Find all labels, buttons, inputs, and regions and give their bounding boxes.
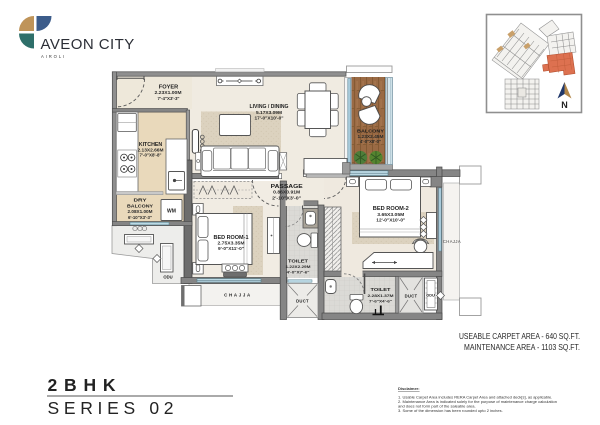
svg-text:4'-0"X7'-6": 4'-0"X7'-6" — [287, 270, 310, 275]
svg-text:MAINTENANCE AREA - 1103 SQ.FT: MAINTENANCE AREA - 1103 SQ.FT. — [464, 343, 580, 352]
svg-text:0.86X0.91M: 0.86X0.91M — [273, 190, 300, 195]
svg-text:DUCT: DUCT — [296, 299, 309, 304]
svg-text:2.75X3.35M: 2.75X3.35M — [218, 241, 245, 246]
svg-text:2.23X1.00M: 2.23X1.00M — [155, 90, 182, 95]
svg-text:CHAJJA: CHAJJA — [443, 239, 461, 244]
svg-text:12'-0"X10'-0": 12'-0"X10'-0" — [376, 218, 405, 223]
svg-text:2.13X2.66M: 2.13X2.66M — [138, 147, 164, 152]
svg-text:4'-0"X8'-0": 4'-0"X8'-0" — [360, 139, 381, 144]
svg-text:17'-0"X10'-0": 17'-0"X10'-0" — [255, 116, 284, 121]
svg-text:DRY: DRY — [134, 198, 148, 204]
svg-text:USEABLE CARPET AREA - 640 SQ.F: USEABLE CARPET AREA - 640 SQ.FT. — [459, 332, 580, 341]
svg-text:WM: WM — [167, 209, 176, 215]
svg-text:AVEON CITY: AVEON CITY — [41, 36, 135, 53]
svg-text:AIROLI: AIROLI — [41, 54, 66, 59]
svg-text:7'-6"X4'-6": 7'-6"X4'-6" — [369, 299, 392, 304]
svg-text:ODU: ODU — [163, 275, 172, 280]
svg-text:9'-0"X11'-0": 9'-0"X11'-0" — [218, 246, 244, 251]
svg-text:3. Some of the dimension has b: 3. Some of the dimension has been rounde… — [398, 408, 503, 413]
svg-text:1.22X2.29M: 1.22X2.29M — [286, 264, 312, 269]
svg-text:N: N — [561, 100, 568, 110]
svg-text:2'-10"X3'-0": 2'-10"X3'-0" — [272, 196, 301, 201]
svg-text:2.28X1.37M: 2.28X1.37M — [368, 293, 395, 298]
svg-text:DUCT: DUCT — [405, 294, 418, 299]
svg-text:3.65X3.05M: 3.65X3.05M — [377, 212, 404, 217]
svg-text:SERIES 02: SERIES 02 — [48, 398, 174, 418]
svg-text:7'-4"X3'-3": 7'-4"X3'-3" — [158, 96, 180, 101]
svg-text:7'-0"X8'-8": 7'-0"X8'-8" — [140, 153, 162, 158]
svg-text:CHAJJA: CHAJJA — [224, 293, 252, 298]
svg-text:2.08X1.00M: 2.08X1.00M — [128, 209, 154, 214]
svg-text:5.17X3.09M: 5.17X3.09M — [256, 110, 282, 115]
svg-text:Disclaimer:: Disclaimer: — [398, 386, 420, 391]
svg-text:ODU: ODU — [426, 294, 435, 298]
svg-text:6'-10"X3'-3": 6'-10"X3'-3" — [128, 215, 152, 220]
